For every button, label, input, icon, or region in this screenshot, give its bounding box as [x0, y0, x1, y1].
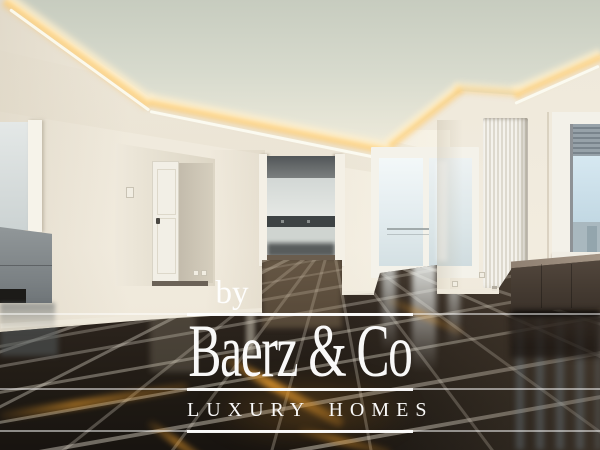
right-window [552, 112, 600, 260]
sky-view [573, 156, 600, 222]
interior-door [152, 161, 179, 282]
watermark-tagline: LUXURY HOMES [187, 399, 413, 421]
sideboard-seam [541, 264, 542, 308]
niche-shadow [179, 163, 213, 283]
fireplace-seam [0, 265, 52, 266]
doorway-jamb-left [259, 154, 267, 266]
power-outlet [193, 270, 199, 276]
back-room-wall [267, 178, 335, 216]
fireplace-reflection [0, 303, 55, 333]
room-photo: by Baerz & Co LUXURY HOMES [0, 0, 600, 450]
door-panel [157, 218, 176, 274]
baseboard [342, 291, 374, 295]
power-outlet [479, 272, 485, 278]
glass-pane-left [379, 158, 423, 266]
power-outlet [201, 270, 207, 276]
watermark-brand: Baerz & Co [177, 314, 424, 389]
window-glass [570, 124, 600, 252]
baseboard [437, 289, 499, 293]
wall-corner-shadow [437, 120, 463, 300]
back-room-rail [267, 216, 335, 227]
watermark-by: by [187, 277, 277, 310]
left-room-opening [0, 122, 30, 230]
building-view [573, 222, 600, 252]
back-room-floor-reflection [267, 227, 335, 243]
balcony-railing [387, 234, 431, 235]
doorway-interior [267, 156, 335, 266]
light-switch [126, 187, 134, 198]
doorway-jamb-right [335, 154, 345, 266]
sideboard-seam [571, 264, 572, 308]
watermark-rule-core [187, 430, 413, 433]
sideboard-reflection [511, 316, 600, 346]
door-panel [157, 169, 176, 215]
sideboard [511, 252, 600, 312]
power-outlet [452, 281, 458, 287]
firebox-opening [0, 289, 26, 303]
doorway-lintel-shadow [267, 156, 335, 178]
wall-seam [547, 112, 549, 260]
balcony-railing [387, 228, 431, 230]
roller-shutter [573, 124, 600, 156]
left-opening-jamb [28, 120, 42, 232]
door-handle [156, 218, 160, 224]
